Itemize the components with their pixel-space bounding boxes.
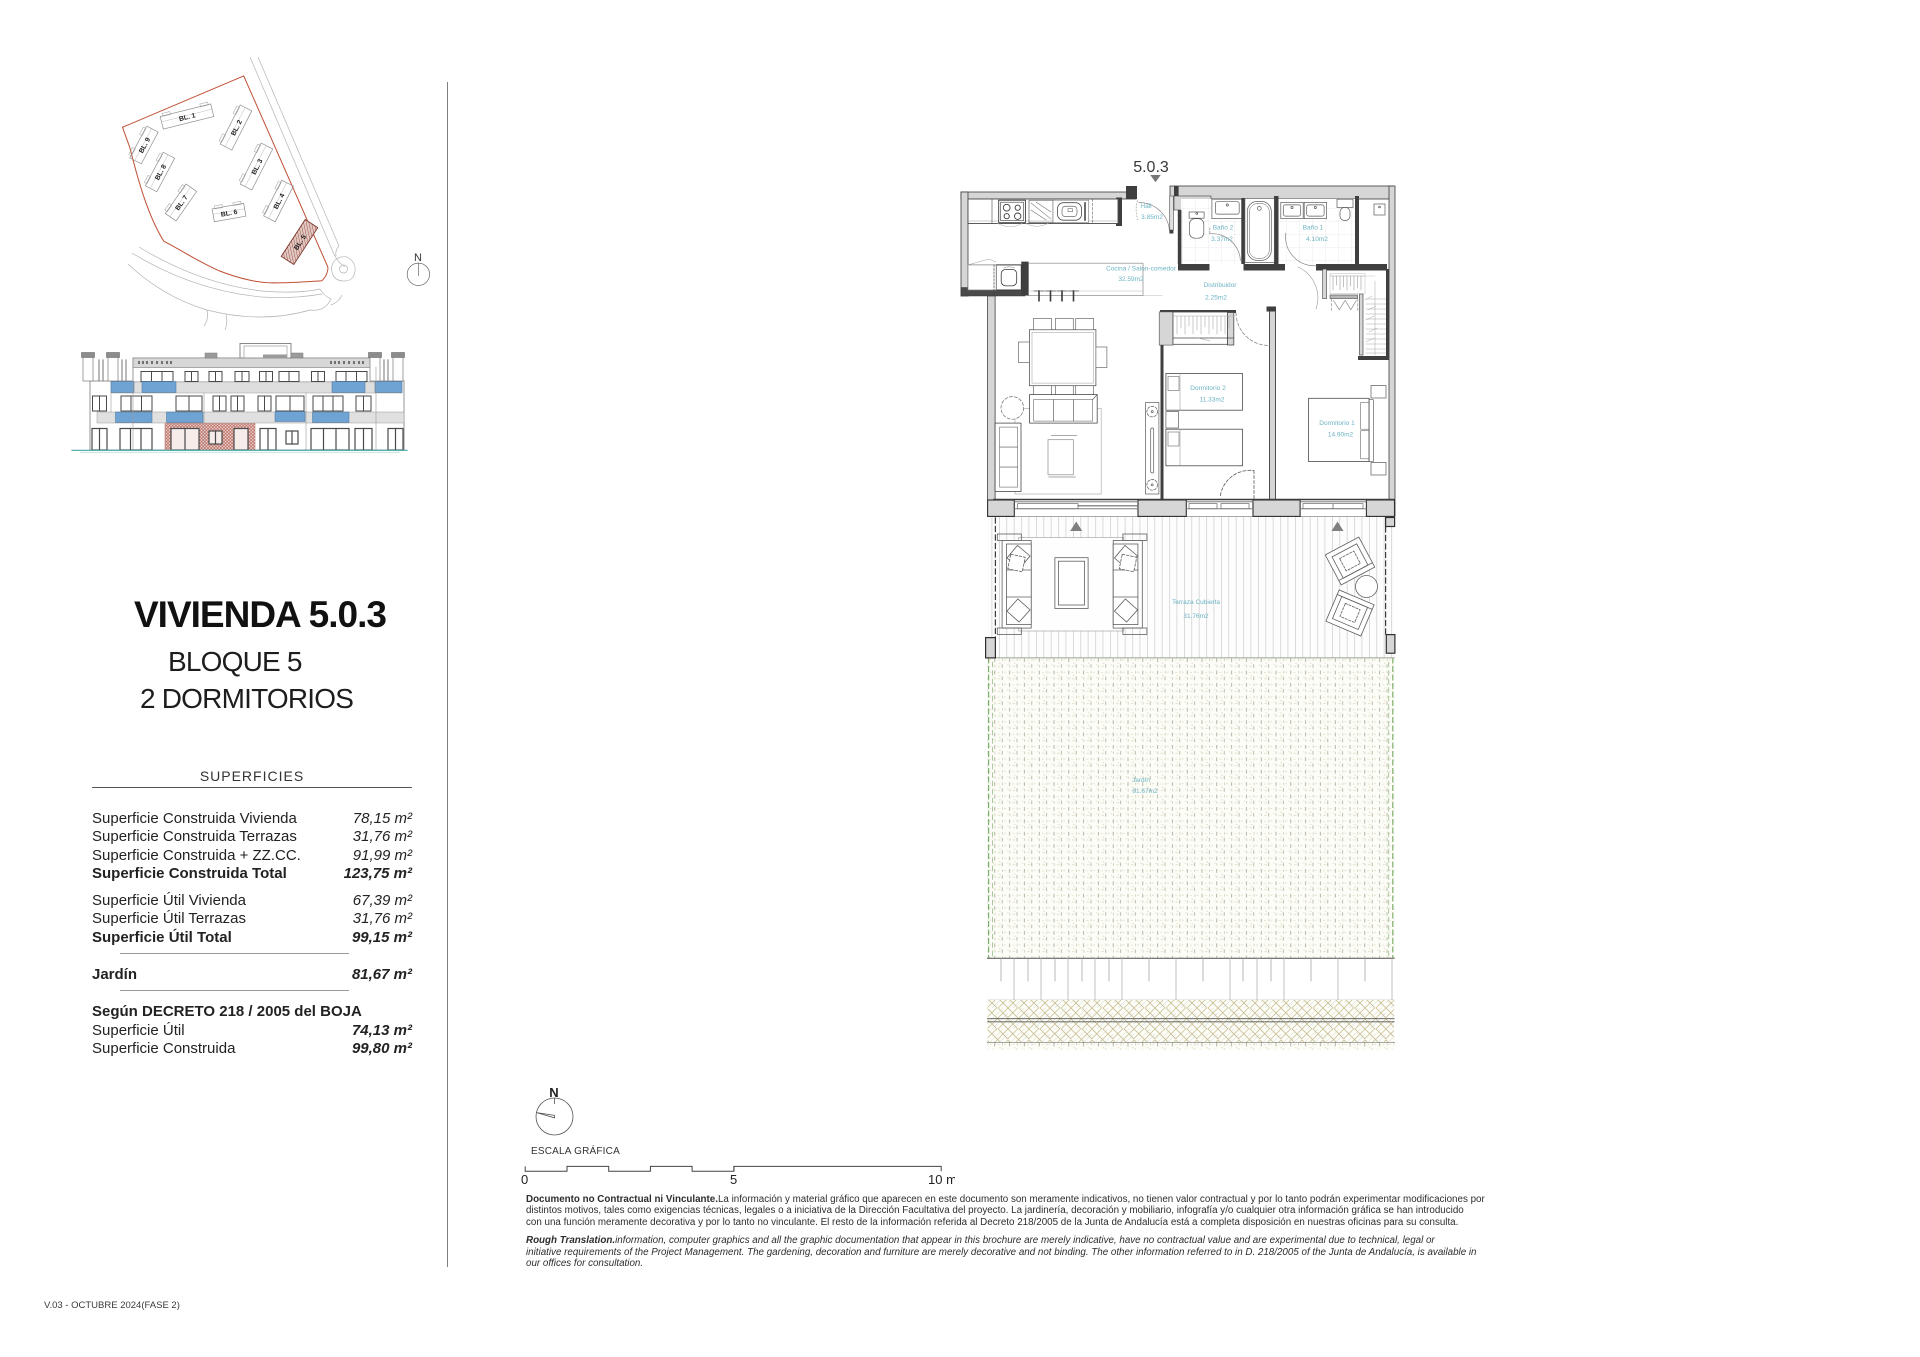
svg-text:11.33m2: 11.33m2	[1200, 397, 1225, 404]
svg-text:32.59m2: 32.59m2	[1118, 276, 1144, 283]
svg-text:BL. 6: BL. 6	[220, 209, 238, 219]
svg-text:5.0.3: 5.0.3	[1133, 159, 1169, 176]
svg-text:N: N	[414, 252, 422, 264]
svg-text:3.85m2: 3.85m2	[1141, 214, 1163, 221]
svg-text:Jardín: Jardín	[1132, 777, 1150, 784]
svg-text:BL. 2: BL. 2	[230, 119, 244, 137]
svg-text:BL. 4: BL. 4	[273, 192, 287, 210]
svg-text:Cocina / Salon-comedor: Cocina / Salon-comedor	[1106, 266, 1177, 273]
svg-text:31.76m2: 31.76m2	[1183, 613, 1209, 620]
svg-text:5: 5	[730, 1172, 737, 1187]
svg-text:Distribuidor: Distribuidor	[1204, 282, 1238, 289]
svg-text:3.37m2: 3.37m2	[1211, 236, 1233, 243]
svg-text:10 m: 10 m	[928, 1172, 955, 1187]
svg-text:Dormitorio 2: Dormitorio 2	[1190, 385, 1226, 392]
svg-text:Baño 2: Baño 2	[1213, 225, 1234, 232]
svg-text:Terraza Cubierta: Terraza Cubierta	[1172, 599, 1220, 606]
svg-text:0: 0	[521, 1172, 528, 1187]
svg-text:81.67m2: 81.67m2	[1132, 788, 1158, 795]
svg-text:BL. 9: BL. 9	[138, 136, 152, 154]
svg-text:BL. 3: BL. 3	[251, 158, 265, 176]
svg-text:Hall: Hall	[1140, 203, 1152, 210]
svg-text:2.25m2: 2.25m2	[1205, 295, 1227, 302]
svg-text:Dormitorio 1: Dormitorio 1	[1319, 420, 1355, 427]
svg-text:14.90m2: 14.90m2	[1328, 432, 1354, 439]
svg-text:Baño 1: Baño 1	[1303, 225, 1324, 232]
svg-text:BL. 8: BL. 8	[154, 163, 168, 181]
svg-text:4.10m2: 4.10m2	[1306, 236, 1328, 243]
